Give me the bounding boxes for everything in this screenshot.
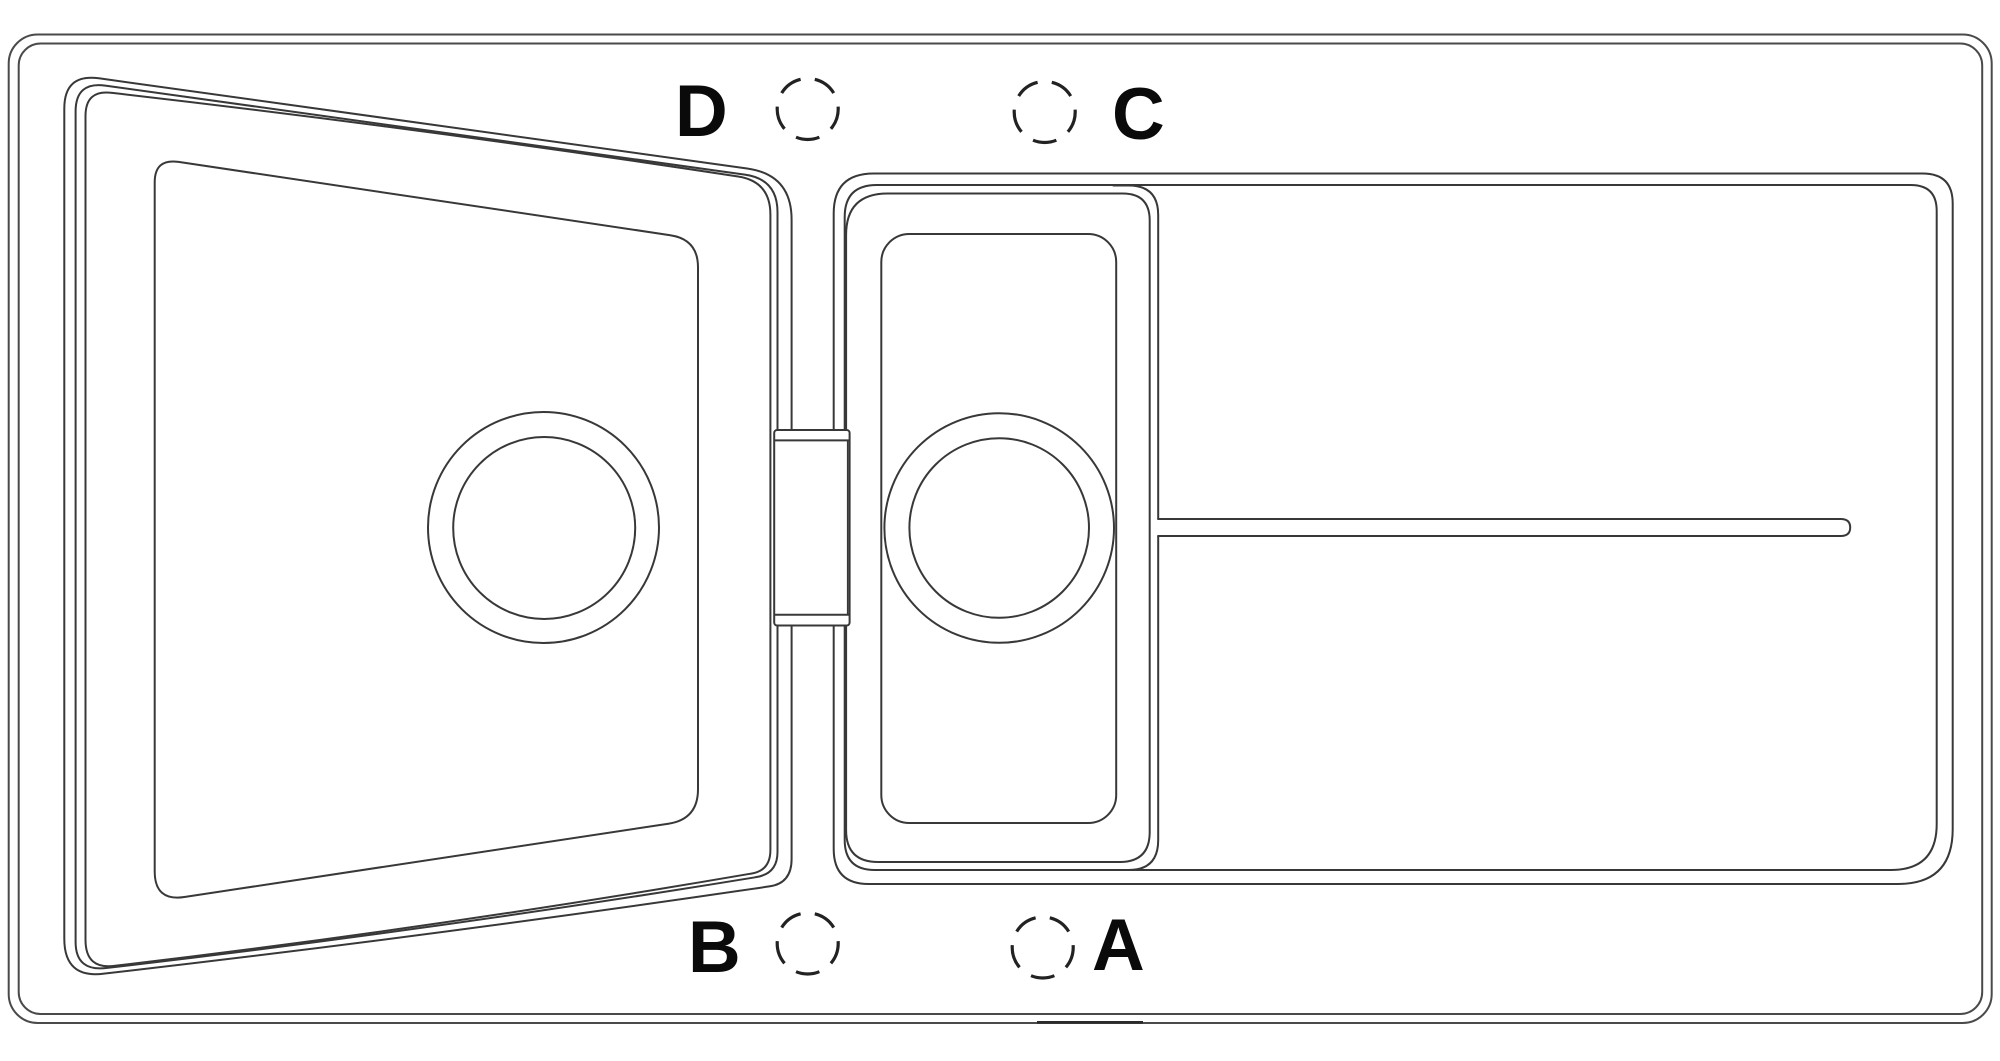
svg-text:C: C [1112,74,1165,155]
svg-text:A: A [1092,905,1145,986]
svg-text:B: B [688,907,741,988]
svg-text:D: D [675,71,728,152]
